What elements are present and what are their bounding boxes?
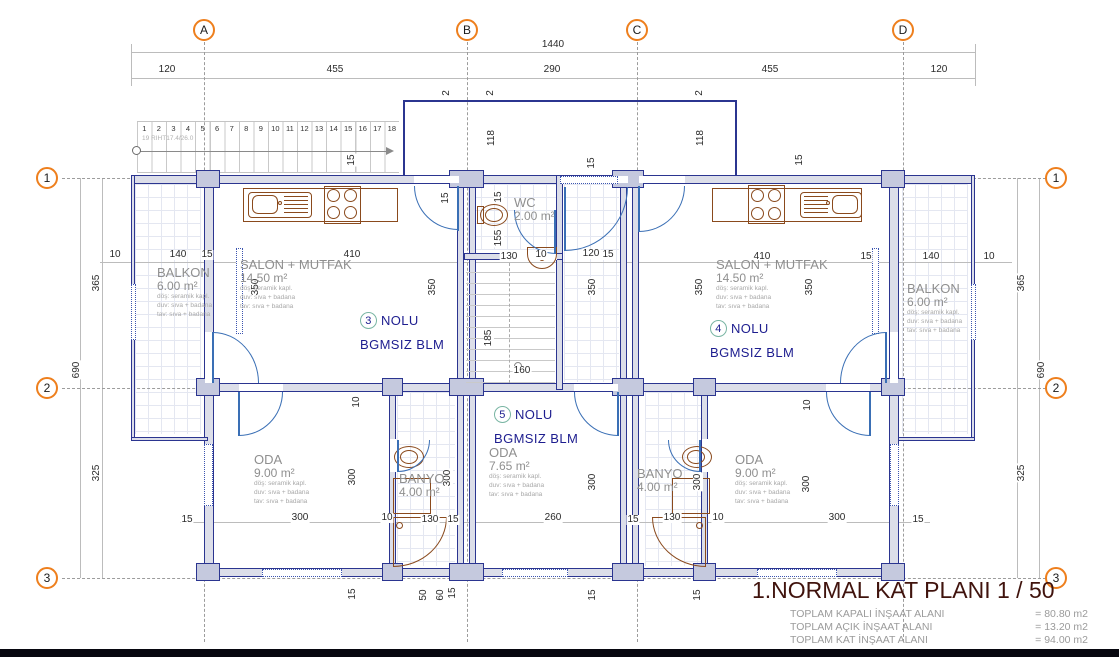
dim-label: 15: [795, 153, 805, 166]
dim-label: 15: [587, 156, 597, 169]
door-leaf: [638, 186, 640, 232]
total-value: = 13.20 m2: [1035, 621, 1088, 634]
dim-line: [1017, 178, 1018, 578]
room-finish: tav: sıva + badana: [489, 491, 544, 500]
wall-pier: [449, 563, 484, 581]
dim-label: 2: [695, 89, 705, 97]
unit-number-circle: 5: [494, 406, 511, 423]
door-leaf: [699, 440, 701, 472]
dim-label: 15: [446, 515, 459, 525]
door-leaf: [564, 187, 566, 251]
stair-walk-line: [509, 263, 510, 383]
unit-type-text: BGMSIZ BLM: [494, 431, 578, 446]
room-area: 9.00 m²: [735, 467, 790, 480]
stove-burner: [327, 206, 340, 219]
dim-line: [131, 44, 132, 86]
stove-burner: [751, 207, 764, 220]
room-name: BALKON: [157, 266, 212, 280]
door-opening: [639, 176, 685, 183]
stair-tread-number: 6: [210, 123, 225, 134]
dim-label: 160: [513, 366, 532, 376]
stair-tread-number: 15: [341, 123, 356, 134]
window: [204, 444, 213, 506]
room-label-wc: WC2.00 m²: [514, 196, 555, 223]
toilet-tank: [477, 206, 484, 224]
door-leaf: [457, 186, 459, 231]
room-area: 6.00 m²: [907, 296, 962, 309]
door-leaf: [212, 332, 214, 383]
dim-label: 1440: [541, 40, 565, 50]
room-name: BANYO: [399, 472, 445, 486]
dim-label: 10: [982, 252, 995, 262]
stair-tread-number: 3: [166, 123, 181, 134]
drawing-title: 1.NORMAL KAT PLANI 1 / 50: [752, 577, 1055, 604]
room-finish: duv: sıva + badana: [907, 318, 962, 327]
interior-stair: [466, 263, 555, 383]
room-area: 4.00 m²: [637, 481, 683, 494]
room-area: 7.65 m²: [489, 460, 544, 473]
dim-label: 2: [486, 89, 496, 97]
canopy-line: [403, 100, 737, 102]
stair-tread-number: 8: [239, 123, 254, 134]
dim-label: 140: [922, 252, 941, 262]
dim-label: 690: [72, 361, 82, 380]
window: [502, 569, 568, 577]
total-label: TOPLAM AÇIK İNŞAAT ALANI: [790, 621, 932, 634]
total-row: TOPLAM KAT İNŞAAT ALANI= 94.00 m2: [790, 634, 1088, 647]
grid-line-D: [903, 42, 904, 642]
door-opening: [826, 384, 870, 391]
door-leaf: [238, 392, 240, 436]
room-area: 14.50 m²: [716, 272, 828, 285]
stove-burner: [327, 189, 340, 202]
room-area: 2.00 m²: [514, 210, 555, 223]
wc-east-wall: [556, 175, 563, 390]
dim-label: 300: [291, 513, 310, 523]
unit-nolu-text: NOLU: [381, 313, 419, 328]
door-arc: [213, 332, 259, 383]
wall-pier: [196, 170, 220, 188]
room-area: 4.00 m²: [399, 486, 445, 499]
window: [131, 284, 136, 340]
dim-line: [131, 78, 975, 79]
dim-label: 50: [419, 588, 429, 601]
dim-label: 260: [544, 513, 563, 523]
stair-tread-number: 14: [326, 123, 341, 134]
grid-bubble-2-right: 2: [1045, 377, 1067, 399]
room-label-oda-right: ODA9.00 m²döş: seramik kapl.duv: sıva + …: [735, 453, 790, 506]
grid-bubble-C: C: [626, 19, 648, 41]
stove-burner: [768, 207, 781, 220]
grid-bubble-2-left: 2: [36, 377, 58, 399]
unit-type-text: BGMSIZ BLM: [360, 337, 444, 352]
unit-label-4: 4NOLUBGMSIZ BLM: [710, 320, 794, 360]
room-finish: döş: seramik kapl.: [907, 309, 962, 318]
room-name: BANYO: [637, 467, 683, 481]
dim-label: 365: [1017, 274, 1027, 293]
door-leaf: [869, 392, 871, 436]
floor-plan-canvas: ABCD112233 123456789101112131415161718 1…: [0, 0, 1119, 657]
dim-label: 690: [1037, 361, 1047, 380]
unit-nolu-text: NOLU: [731, 321, 769, 336]
wall-mid: [204, 383, 899, 392]
kitchen-sink-bowl: [252, 195, 278, 214]
stove-burner: [344, 206, 357, 219]
kitchen-drainboard: [284, 196, 308, 213]
dim-label: 455: [326, 65, 345, 75]
tub-drain: [396, 522, 403, 529]
dim-label: 120: [158, 65, 177, 75]
dim-label: 300: [693, 473, 703, 492]
dim-label: 120: [582, 249, 601, 259]
room-finish: tav: sıva + badana: [240, 303, 352, 312]
dim-label: 10: [711, 513, 724, 523]
stair-tread-number: 4: [181, 123, 196, 134]
dim-label: 15: [200, 250, 213, 260]
room-finish: duv: sıva + badana: [489, 482, 544, 491]
stair-note: 19 RIHT17.4/26.0: [142, 135, 193, 142]
room-finish: duv: sıva + badana: [254, 489, 309, 498]
stair-tread-number: 13: [312, 123, 327, 134]
stair-tread-number: 9: [254, 123, 269, 134]
room-label-balkon-right: BALKON6.00 m²döş: seramik kapl.duv: sıva…: [907, 282, 962, 335]
dim-label: 325: [92, 464, 102, 483]
dim-label: 10: [352, 395, 362, 408]
dim-label: 118: [696, 129, 706, 147]
dim-label: 15: [180, 515, 193, 525]
wall-pier: [693, 378, 716, 396]
wall-pier: [612, 563, 644, 581]
wall-pier: [196, 563, 220, 581]
dim-label: 10: [108, 250, 121, 260]
grid-bubble-B: B: [456, 19, 478, 41]
dim-label: 185: [484, 329, 494, 348]
total-label: TOPLAM KAPALI İNŞAAT ALANI: [790, 608, 944, 621]
room-finish: döş: seramik kapl.: [254, 480, 309, 489]
dim-label: 140: [169, 250, 188, 260]
wall-pier: [881, 170, 905, 188]
dim-label: 130: [663, 513, 682, 523]
room-label-balkon-left: BALKON6.00 m²döş: seramik kapl.duv: sıva…: [157, 266, 212, 319]
room-label-salon-right: SALON + MUTFAK14.50 m²döş: seramik kapl.…: [716, 258, 828, 311]
unit-label-3: 3NOLUBGMSIZ BLM: [360, 312, 444, 352]
stair-tread-number: 18: [385, 123, 400, 134]
room-finish: döş: seramik kapl.: [489, 473, 544, 482]
door-opening: [414, 176, 459, 183]
tub-drain: [696, 522, 703, 529]
dim-label: 118: [487, 129, 497, 147]
dim-label: 15: [626, 515, 639, 525]
room-name: SALON + MUTFAK: [240, 258, 352, 272]
window: [890, 444, 899, 506]
room-name: WC: [514, 196, 555, 210]
dim-label: 10: [803, 398, 813, 411]
room-finish: tav: sıva + badana: [157, 311, 212, 320]
dim-line: [102, 178, 103, 578]
room-finish: duv: sıva + badana: [716, 294, 828, 303]
wall-top: [131, 175, 975, 184]
dim-label: 15: [347, 153, 357, 166]
dim-label: 300: [348, 468, 358, 487]
room-area: 14.50 m²: [240, 272, 352, 285]
room-finish: tav: sıva + badana: [907, 327, 962, 336]
stair-tread-number: 7: [224, 123, 239, 134]
window: [872, 248, 879, 334]
dim-label: 15: [494, 190, 504, 203]
dim-label: 15: [693, 588, 703, 601]
total-label: TOPLAM KAT İNŞAAT ALANI: [790, 634, 928, 647]
unit-label-5: 5NOLUBGMSIZ BLM: [494, 406, 578, 446]
wall-pier: [382, 378, 403, 396]
door-arc: [826, 392, 870, 436]
door-arc: [414, 186, 458, 230]
room-finish: tav: sıva + badana: [735, 498, 790, 507]
stair-tread-number: 2: [152, 123, 167, 134]
total-value: = 94.00 m2: [1035, 634, 1088, 647]
unit-number-circle: 4: [710, 320, 727, 337]
dim-label: 455: [761, 65, 780, 75]
room-finish: tav: sıva + badana: [254, 498, 309, 507]
grid-bubble-A: A: [193, 19, 215, 41]
dim-label: 300: [588, 473, 598, 492]
dim-label: 300: [828, 513, 847, 523]
canopy-line: [403, 100, 405, 176]
door-leaf: [397, 440, 399, 472]
unit-number-circle: 3: [360, 312, 377, 329]
dim-label: 350: [428, 278, 438, 297]
dim-label: 325: [1017, 464, 1027, 483]
room-finish: duv: sıva + badana: [735, 489, 790, 498]
balcony-left-south: [131, 437, 208, 441]
total-value: = 80.80 m2: [1035, 608, 1088, 621]
room-finish: duv: sıva + badana: [240, 294, 352, 303]
dim-label: 290: [543, 65, 562, 75]
stair-tread-number: 16: [355, 123, 370, 134]
room-name: ODA: [254, 453, 309, 467]
dim-label: 10: [380, 513, 393, 523]
grid-bubble-3-left: 3: [36, 567, 58, 589]
room-finish: döş: seramik kapl.: [735, 480, 790, 489]
dim-label: 10: [534, 250, 547, 260]
stair-tread-number: 1: [137, 123, 152, 134]
balcony-right-south: [898, 437, 975, 441]
stair-arrow-head: [386, 147, 394, 155]
dim-label: 15: [601, 250, 614, 260]
total-row: TOPLAM AÇIK İNŞAAT ALANI= 13.20 m2: [790, 621, 1088, 634]
dim-label: 15: [448, 586, 458, 599]
room-finish: döş: seramik kapl.: [240, 285, 352, 294]
room-name: ODA: [489, 446, 544, 460]
stair-tread-numbers: 123456789101112131415161718: [137, 123, 399, 134]
dim-label: 15: [588, 588, 598, 601]
stair-tread-number: 12: [297, 123, 312, 134]
unit-type-text: BGMSIZ BLM: [710, 345, 794, 360]
room-label-oda-center: ODA7.65 m²döş: seramik kapl.duv: sıva + …: [489, 446, 544, 499]
total-row: TOPLAM KAPALI İNŞAAT ALANI= 80.80 m2: [790, 608, 1088, 621]
dim-label: 350: [588, 278, 598, 297]
dim-label: 300: [802, 475, 812, 494]
stair-tread-number: 5: [195, 123, 210, 134]
door-arc: [639, 186, 685, 232]
dim-line: [131, 52, 975, 53]
unit-nolu-text: NOLU: [515, 407, 553, 422]
canopy-line: [735, 100, 737, 176]
window: [757, 569, 837, 577]
room-finish: döş: seramik kapl.: [157, 293, 212, 302]
room-area: 6.00 m²: [157, 280, 212, 293]
stair-tread-number: 10: [268, 123, 283, 134]
stair-tread-number: 11: [283, 123, 298, 134]
dim-label: 350: [695, 278, 705, 297]
stair-arrow-line: [140, 151, 388, 152]
window: [971, 284, 976, 340]
room-label-salon-left: SALON + MUTFAK14.50 m²döş: seramik kapl.…: [240, 258, 352, 311]
dim-label: 365: [92, 274, 102, 293]
unit-number-row: 5NOLU: [494, 406, 578, 423]
grid-bubble-1-left: 1: [36, 167, 58, 189]
dim-label: 15: [911, 515, 924, 525]
window: [560, 176, 618, 184]
door-opening: [239, 384, 283, 391]
kitchen-sink-bowl: [832, 195, 858, 214]
room-name: SALON + MUTFAK: [716, 258, 828, 272]
grid-bubble-1-right: 1: [1045, 167, 1067, 189]
door-opening: [574, 384, 618, 391]
stove-burner: [344, 189, 357, 202]
bottom-bar: [0, 649, 1119, 657]
room-name: BALKON: [907, 282, 962, 296]
room-finish: döş: seramik kapl.: [716, 285, 828, 294]
toilet-bowl: [485, 208, 503, 222]
door-opening: [890, 332, 898, 383]
stove-burner: [751, 189, 764, 202]
room-name: ODA: [735, 453, 790, 467]
room-label-banyo-left: BANYO4.00 m²: [399, 472, 445, 499]
stove-burner: [768, 189, 781, 202]
dim-label: 2: [442, 89, 452, 97]
dim-label: 155: [494, 229, 504, 248]
dim-line: [975, 44, 976, 86]
door-arc: [239, 392, 283, 436]
dim-label: 60: [436, 588, 446, 601]
door-arc: [574, 392, 618, 436]
window: [262, 569, 342, 577]
stair-tread-number: 17: [370, 123, 385, 134]
room-label-banyo-right: BANYO4.00 m²: [637, 467, 683, 494]
dim-label: 15: [348, 587, 358, 600]
kitchen-faucet: [826, 201, 830, 205]
dim-label: 130: [421, 515, 440, 525]
unit-number-row: 4NOLU: [710, 320, 794, 337]
dim-label: 120: [930, 65, 949, 75]
room-finish: tav: sıva + badana: [716, 303, 828, 312]
dim-label: 130: [500, 252, 519, 262]
room-finish: duv: sıva + badana: [157, 302, 212, 311]
kitchen-faucet: [278, 201, 282, 205]
door-leaf: [617, 392, 619, 436]
dim-label: 15: [441, 191, 451, 204]
dim-label: 15: [859, 252, 872, 262]
stair-start-circle: [132, 146, 141, 155]
area-totals: TOPLAM KAPALI İNŞAAT ALANI= 80.80 m2TOPL…: [790, 608, 1088, 647]
grid-bubble-D: D: [892, 19, 914, 41]
kitchen-drainboard: [804, 196, 828, 213]
unit-number-row: 3NOLU: [360, 312, 444, 329]
room-area: 9.00 m²: [254, 467, 309, 480]
door-leaf: [885, 332, 887, 383]
door-arc: [840, 332, 886, 383]
room-label-oda-left: ODA9.00 m²döş: seramik kapl.duv: sıva + …: [254, 453, 309, 506]
